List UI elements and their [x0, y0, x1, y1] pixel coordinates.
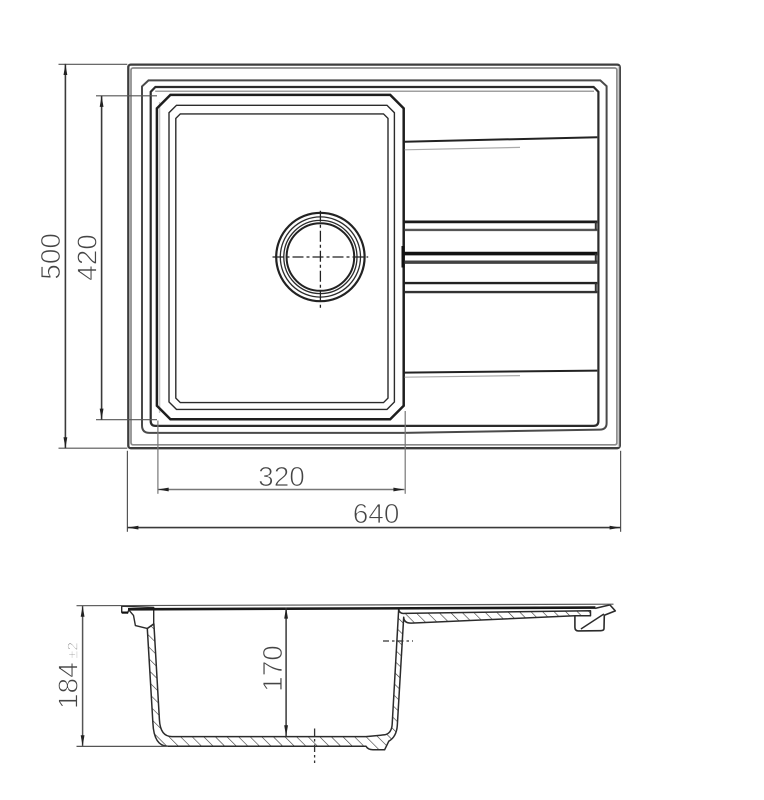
svg-text:320: 320 — [258, 461, 305, 492]
svg-text:420: 420 — [71, 234, 102, 281]
svg-text:±2: ±2 — [65, 642, 82, 659]
svg-text:640: 640 — [353, 498, 400, 529]
svg-text:170: 170 — [257, 645, 288, 692]
svg-text:500: 500 — [35, 233, 66, 280]
svg-text:184: 184 — [52, 662, 83, 709]
